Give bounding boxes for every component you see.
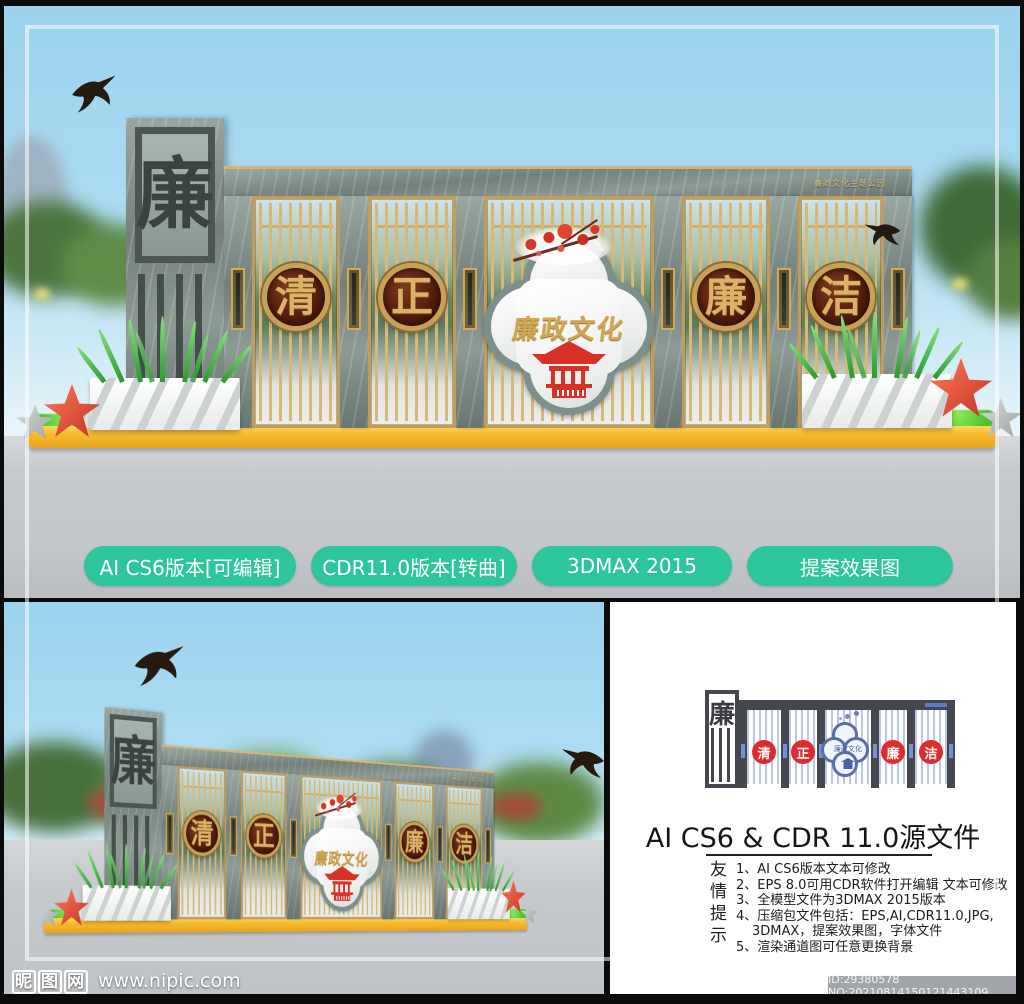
lattice-panel: 廉 <box>682 196 770 428</box>
tip-item: 2、EPS 8.0可用CDR软件打开编辑 文本可修改 <box>736 878 1004 894</box>
diagram-quatrefoil: 廉政文化 <box>821 722 875 780</box>
planter-box <box>802 374 952 428</box>
site-url: www.nipic.com <box>98 970 241 992</box>
mini-gate-stage: 廉 廉政文化主题公园 清 正 <box>29 621 537 994</box>
medallion-character: 清 <box>191 819 214 847</box>
diagram-pillar <box>907 710 915 788</box>
version-buttons: AI CS6版本[可编辑] CDR11.0版本[转曲] 3DMAX 2015 提… <box>84 546 953 586</box>
gold-ornament-plaque <box>661 268 675 330</box>
tip-item: 4、压缩包文件包括：EPS,AI,CDR11.0,JPG, <box>736 909 1004 925</box>
button-3dmax-version[interactable]: 3DMAX 2015 <box>532 546 732 586</box>
gold-ornament-plaque <box>230 816 237 856</box>
lattice-panel: 清 <box>252 196 340 428</box>
button-proposal-render[interactable]: 提案效果图 <box>747 546 953 586</box>
stone-pillar <box>340 196 368 428</box>
lattice-panel: 清 <box>178 766 226 919</box>
swallow-icon <box>560 746 604 782</box>
plum-blossom-branch <box>501 219 631 271</box>
branch <box>513 235 598 262</box>
top-beam: 廉政文化主题公园 <box>224 166 912 196</box>
diagram-panel: 洁 <box>915 710 947 784</box>
gold-ornament-plaque <box>290 819 297 858</box>
main-render: 廉 廉政文化主题公园 清 正 <box>4 6 1020 598</box>
diagram-tower: 廉 <box>705 690 739 788</box>
quatrefoil-plaque: 廉政文化 <box>301 800 382 911</box>
gate-structure: 廉 廉政文化主题公园 清 正 <box>4 6 1020 598</box>
diagram-medallion: 正 <box>791 740 815 764</box>
diagram-center-panel: 廉政文化 <box>825 710 871 784</box>
center-panel: 廉政文化 <box>484 196 654 428</box>
medallion-character: 廉 <box>705 276 747 318</box>
planter-box <box>90 378 240 430</box>
diagram-park-label-dash <box>925 703 947 707</box>
park-name-label: 廉政文化主题公园 <box>814 178 886 189</box>
stone-pillar <box>434 784 446 919</box>
site-logo: 昵图网 <box>12 967 90 992</box>
tower-lattice: 廉 <box>110 714 157 809</box>
diagram-center-title: 廉政文化 <box>821 744 875 754</box>
stone-pillar <box>382 780 395 919</box>
design-preview-page: 廉 廉政文化主题公园 清 正 <box>0 0 1024 1004</box>
diagram-tower-character: 廉 <box>709 694 735 731</box>
image-id-badge: ID:29380578 NO:20210814150121443109 <box>828 976 1016 994</box>
swallow-icon <box>863 218 906 252</box>
medallion-zheng: 正 <box>246 814 281 859</box>
tower-lattice: 廉 <box>135 127 215 263</box>
blossoms <box>525 239 536 250</box>
gold-ornament-plaque <box>385 824 391 861</box>
watermark: 昵图网 www.nipic.com <box>12 967 241 992</box>
swallow-icon <box>66 73 123 118</box>
diagram-medallion: 清 <box>752 740 776 764</box>
quatrefoil-plaque: 廉政文化 <box>484 237 654 415</box>
swallow-icon <box>128 643 190 691</box>
perspective-render: 廉 廉政文化主题公园 清 正 <box>4 602 604 994</box>
gate-structure: 廉 廉政文化主题公园 清 正 <box>29 621 537 994</box>
diagram-panel: 清 <box>747 710 781 784</box>
tower-character: 廉 <box>110 734 156 790</box>
diagram-pillar <box>781 710 789 788</box>
grass-plant <box>85 842 169 889</box>
park-name-label: 廉政文化主题公园 <box>453 775 483 784</box>
stone-pillar <box>654 196 682 428</box>
info-panel: 廉 清 正 廉政文化 <box>610 602 1016 994</box>
tips-list: 1、AI CS6版本文本可修改 2、EPS 8.0可用CDR软件打开编辑 文本可… <box>736 862 1004 955</box>
flat-diagram: 廉 清 正 廉政文化 <box>705 690 955 790</box>
diagram-pillar <box>739 710 747 788</box>
tip-item-continuation: 3DMAX，提案效果图，字体文件 <box>736 924 1004 940</box>
lattice-panel: 廉 <box>395 781 434 919</box>
medallion-qing: 清 <box>262 263 330 331</box>
tower-character: 廉 <box>136 156 214 234</box>
tip-item: 1、AI CS6版本文本可修改 <box>736 862 1004 878</box>
plum-blossom-branch <box>309 789 371 824</box>
lattice-panel: 正 <box>241 770 287 919</box>
stone-pillar <box>456 196 484 428</box>
medallion-lian: 廉 <box>692 263 760 331</box>
center-panel: 廉政文化 <box>301 775 382 920</box>
lattice-panel: 正 <box>368 196 456 428</box>
diagram-panel: 廉 <box>879 710 907 784</box>
diagram-pillar <box>947 710 955 788</box>
medallion-qing: 清 <box>183 810 220 856</box>
grass-plant <box>449 852 508 891</box>
title-underline <box>706 854 932 856</box>
grass-plant <box>806 312 948 378</box>
diagram-tower-slots <box>711 728 733 782</box>
gold-ornament-plaque <box>777 268 791 330</box>
medallion-character: 正 <box>253 822 275 850</box>
planter-box <box>448 888 510 919</box>
source-file-title: AI CS6 & CDR 11.0源文件 <box>630 816 996 855</box>
gold-ornament-plaque <box>437 826 443 862</box>
pavilion-icon <box>324 866 359 901</box>
medallion-character: 正 <box>391 276 433 318</box>
medallion-lian: 廉 <box>399 821 429 862</box>
diagram-medallion: 洁 <box>919 740 943 764</box>
tip-item: 5、渲染通道图可任意更换背景 <box>736 940 1004 956</box>
gold-ornament-plaque <box>463 268 477 330</box>
pavilion-icon <box>532 341 606 398</box>
button-cdr-version[interactable]: CDR11.0版本[转曲] <box>311 546 517 586</box>
gold-ornament-plaque <box>347 268 361 330</box>
medallion-zheng: 正 <box>378 263 446 331</box>
diagram-beam <box>739 700 955 710</box>
grass-plant <box>94 316 236 382</box>
medallion-character: 廉 <box>405 829 424 854</box>
stone-pillar <box>226 769 241 919</box>
planter-box <box>83 885 171 921</box>
stone-pillar <box>770 196 798 428</box>
diagram-medallion: 廉 <box>881 740 905 764</box>
diagram-panel: 正 <box>789 710 817 784</box>
tip-item: 3、全模型文件为3DMAX 2015版本 <box>736 893 1004 909</box>
diagram-plum <box>845 714 850 719</box>
stone-pillar <box>286 774 300 920</box>
blossoms <box>321 803 326 810</box>
button-ai-version[interactable]: AI CS6版本[可编辑] <box>84 546 296 586</box>
tips-label: 友情提示 <box>704 860 729 948</box>
medallion-character: 清 <box>275 276 317 318</box>
